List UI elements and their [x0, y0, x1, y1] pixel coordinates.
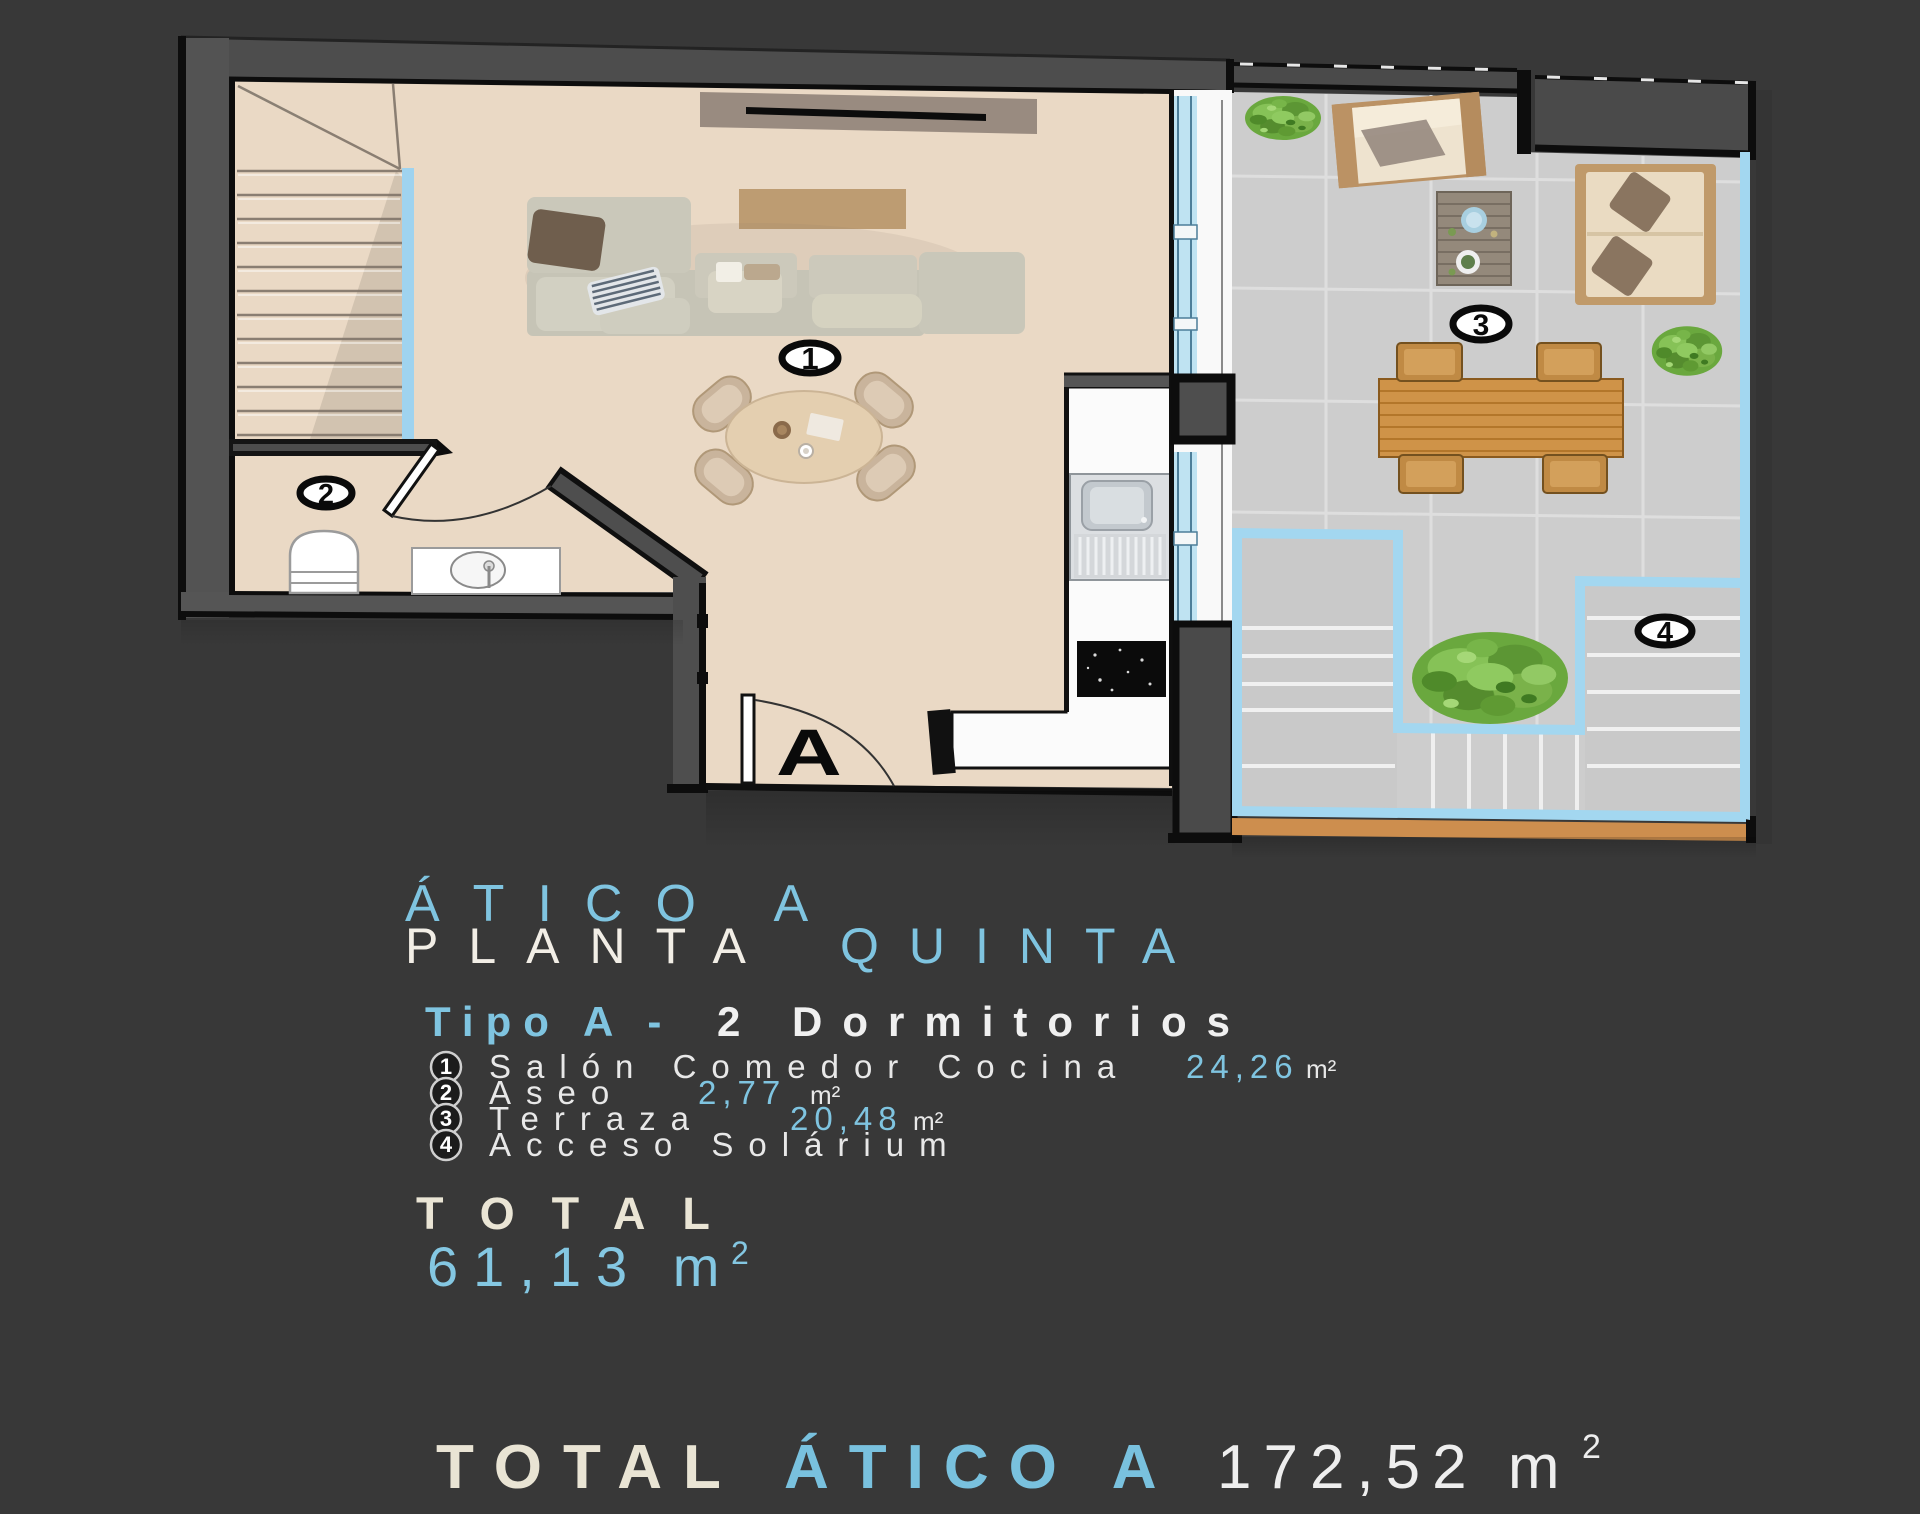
svg-text:172,52 m: 172,52 m	[1217, 1433, 1572, 1502]
svg-text:1: 1	[440, 1054, 452, 1079]
svg-text:1: 1	[801, 341, 818, 376]
svg-text:2: 2	[731, 1235, 749, 1271]
svg-text:3: 3	[440, 1106, 452, 1131]
svg-text:24,26: 24,26	[1186, 1048, 1299, 1085]
svg-text:61,13 m: 61,13 m	[427, 1235, 734, 1298]
svg-text:TOTAL: TOTAL	[436, 1433, 742, 1502]
svg-text:PLANTA: PLANTA	[405, 918, 776, 974]
svg-text:2: 2	[318, 479, 334, 511]
svg-text:Acceso Solárium: Acceso Solárium	[489, 1126, 962, 1163]
svg-text:ÁTICO A: ÁTICO A	[784, 1433, 1177, 1502]
svg-text:m²: m²	[1306, 1054, 1337, 1084]
svg-text:A: A	[776, 715, 842, 789]
svg-text:4: 4	[440, 1132, 453, 1157]
svg-text:2: 2	[440, 1080, 452, 1105]
svg-text:TOTAL: TOTAL	[416, 1188, 747, 1239]
svg-text:2,77: 2,77	[698, 1074, 786, 1111]
svg-text:2: 2	[1582, 1428, 1601, 1466]
svg-text:3: 3	[1473, 309, 1490, 342]
svg-text:4: 4	[1657, 617, 1673, 649]
svg-text:QUINTA: QUINTA	[840, 918, 1205, 974]
svg-text:2 Dormitorios: 2 Dormitorios	[717, 998, 1250, 1045]
svg-text:Tipo A -: Tipo A -	[425, 998, 673, 1045]
